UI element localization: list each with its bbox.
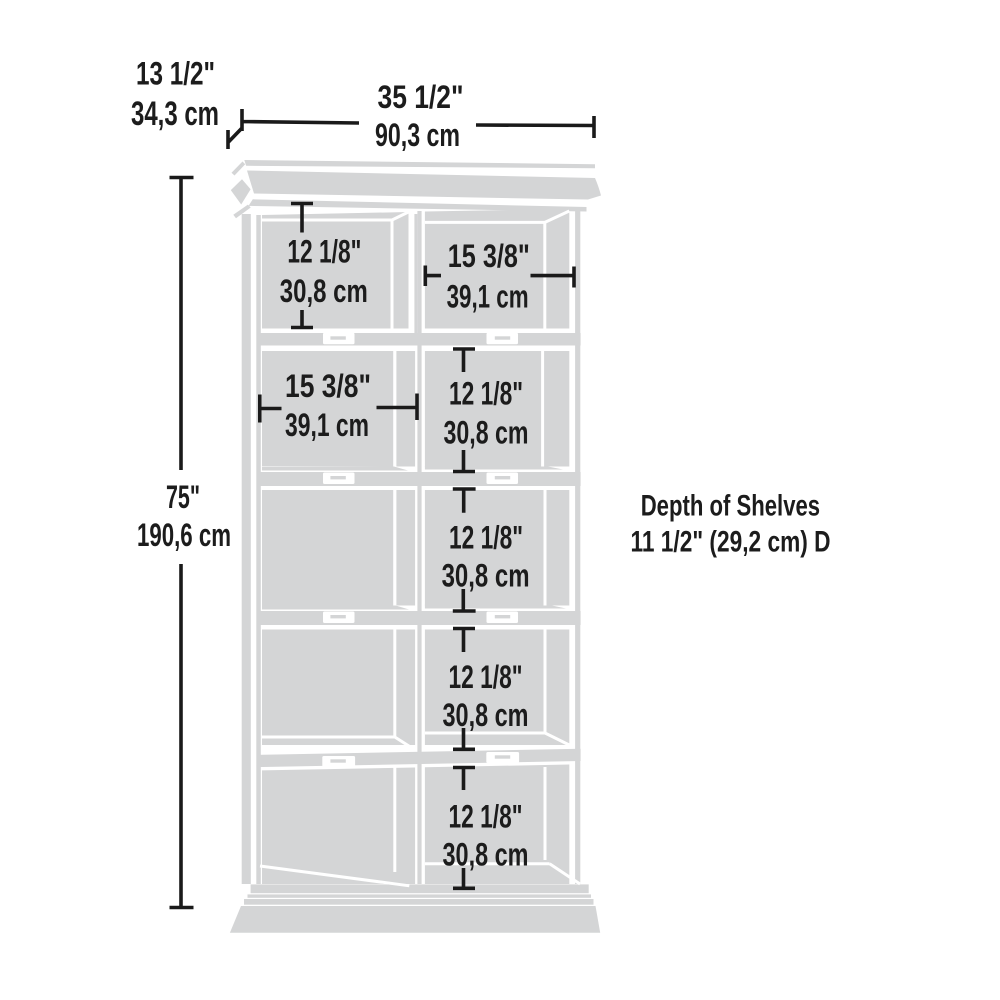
svg-text:30,8 cm: 30,8 cm (443, 697, 529, 733)
svg-text:39,1 cm: 39,1 cm (447, 279, 529, 315)
svg-text:13 1/2": 13 1/2" (136, 56, 215, 92)
svg-text:12 1/8": 12 1/8" (449, 520, 523, 556)
svg-text:90,3 cm: 90,3 cm (375, 117, 460, 153)
svg-text:30,8 cm: 30,8 cm (443, 837, 529, 873)
svg-text:Depth of Shelves: Depth of Shelves (641, 490, 820, 523)
svg-text:30,8 cm: 30,8 cm (444, 415, 529, 451)
svg-text:12 1/8": 12 1/8" (449, 376, 523, 412)
svg-text:11 1/2" (29,2 cm) D: 11 1/2" (29,2 cm) D (631, 525, 831, 558)
svg-text:190,6 cm: 190,6 cm (137, 517, 231, 553)
svg-text:35 1/2": 35 1/2" (378, 79, 464, 115)
svg-text:12 1/8": 12 1/8" (449, 799, 523, 835)
svg-text:34,3 cm: 34,3 cm (131, 95, 219, 133)
svg-text:39,1 cm: 39,1 cm (285, 407, 369, 443)
svg-text:12 1/8": 12 1/8" (287, 234, 361, 270)
svg-text:75": 75" (166, 479, 200, 515)
svg-text:15 3/8": 15 3/8" (448, 238, 530, 274)
svg-text:12 1/8": 12 1/8" (449, 659, 523, 695)
svg-text:30,8 cm: 30,8 cm (280, 273, 368, 309)
svg-text:30,8 cm: 30,8 cm (442, 558, 530, 594)
svg-text:15 3/8": 15 3/8" (285, 368, 371, 404)
